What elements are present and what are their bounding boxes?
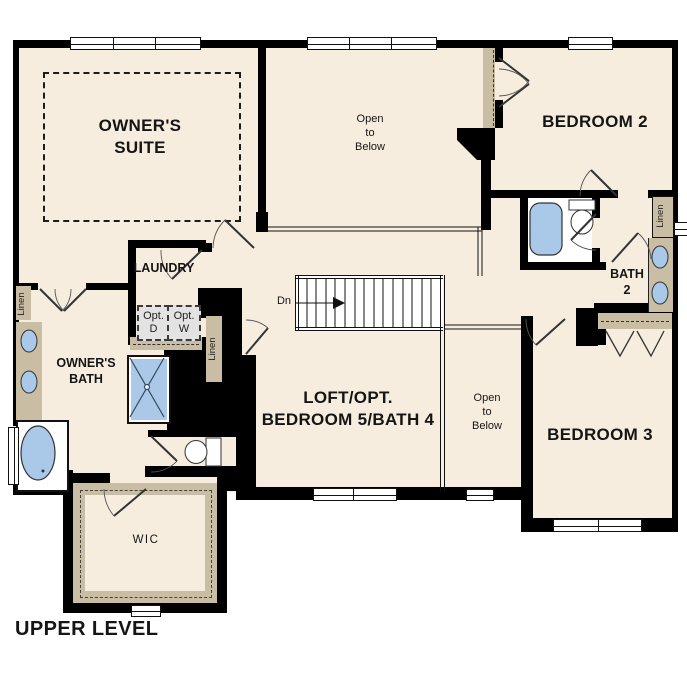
plan-linework: [0, 0, 687, 687]
linen-label-hall: Linen: [207, 332, 221, 366]
toilet-icon: [185, 438, 221, 466]
railing: [266, 227, 521, 492]
page-title: UPPER LEVEL: [15, 618, 215, 641]
laundry-label: LAUNDRY: [129, 261, 199, 277]
owners-suite-label: OWNER'S SUITE: [60, 115, 220, 159]
loft-label: LOFT/OPT. BEDROOM 5/BATH 4: [248, 387, 448, 431]
bathtub-icon: [530, 203, 562, 255]
floor-plan: Opt. D Opt. W: [0, 0, 687, 687]
bifold-door: [606, 331, 664, 356]
stair-direction-label: Dn: [274, 295, 294, 309]
sink-icon: [652, 246, 668, 268]
sink-icon: [652, 282, 668, 304]
wic-label: WIC: [116, 534, 176, 546]
open-to-below2-label: Open to Below: [447, 392, 527, 433]
bedroom3-label: BEDROOM 3: [520, 424, 680, 446]
bathtub-icon: [21, 426, 55, 480]
linen-label-owners-bath: Linen: [16, 287, 30, 321]
owners-bath-label: OWNER'S BATH: [46, 356, 126, 387]
linen-label-bath2: Linen: [655, 199, 669, 233]
bath2-label: BATH 2: [600, 267, 654, 298]
sink-icon: [21, 330, 37, 352]
bedroom2-label: BEDROOM 2: [515, 111, 675, 133]
open-to-below-label: Open to Below: [330, 113, 410, 154]
sink-icon: [21, 371, 37, 393]
wall-corner: [457, 128, 495, 160]
shower-glass-icon: [130, 358, 164, 417]
